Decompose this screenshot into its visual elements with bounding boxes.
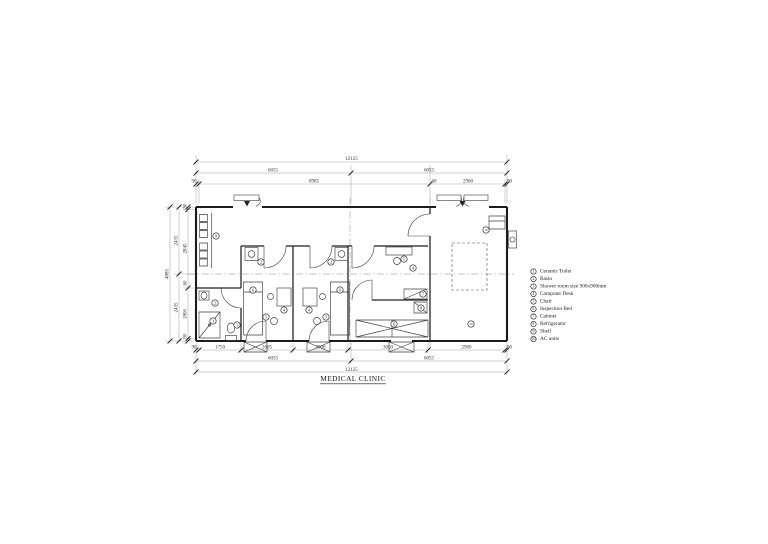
svg-text:2: 2 (533, 277, 535, 281)
svg-text:3: 3 (212, 319, 214, 324)
svg-text:6: 6 (393, 322, 395, 327)
svg-text:10: 10 (469, 322, 473, 326)
drawing-sheet: 12125 6055 6055 90 8985 60 2900 90 90 17… (0, 0, 768, 544)
dimension-text-left: 4885 2435 2435 90 2845 60 1800 90 (165, 203, 188, 339)
svg-text:5: 5 (533, 300, 535, 304)
legend-label: Ceramic Toilet (540, 269, 572, 275)
dim-bot-half-left: 6055 (268, 357, 279, 362)
svg-text:5: 5 (403, 257, 405, 262)
room-c-desk-icon (386, 247, 412, 255)
dim-bot-90-left: 90 (192, 345, 198, 350)
svg-text:5: 5 (325, 315, 327, 320)
room-a-desk-icon (277, 288, 291, 306)
dim-left-90-bottom: 90 (183, 333, 188, 339)
dimension-text-bottom: 90 1750 2605 2000 3050 2900 90 6055 6055… (192, 345, 513, 373)
legend: 1Ceramic Toilet 2Basin 3Shower room size… (531, 269, 607, 343)
entrance-door-curl (256, 198, 260, 207)
dim-top-90-left: 90 (192, 180, 198, 185)
room-a-basin-icon (245, 248, 258, 261)
waiting-area-shelving (200, 213, 212, 268)
legend-item: 8Refrigerator (531, 320, 566, 327)
dim-top-60: 60 (432, 180, 438, 185)
svg-text:10: 10 (484, 228, 488, 232)
label-room-a-chair: 5 (263, 314, 269, 320)
label-ac-top: 10 (483, 227, 489, 233)
svg-text:2: 2 (214, 301, 216, 306)
dim-left-2845: 2845 (183, 243, 188, 254)
label-room-b-basin: 2 (328, 259, 334, 265)
double-door-leaf-left (437, 195, 461, 201)
svg-text:6: 6 (339, 288, 341, 293)
svg-text:8: 8 (533, 322, 535, 326)
svg-text:6: 6 (252, 288, 254, 293)
dim-left-2435-top: 2435 (174, 235, 179, 246)
room-b-basin-icon (335, 248, 348, 261)
floor-plan-svg: 12125 6055 6055 90 8985 60 2900 90 90 17… (0, 0, 768, 544)
ac-condenser-fan-icon (510, 237, 515, 242)
svg-text:1: 1 (533, 270, 535, 274)
dim-left-2435-bottom: 2435 (174, 302, 179, 313)
svg-text:6: 6 (533, 307, 535, 311)
label-room-a-basin: 2 (258, 259, 264, 265)
dim-top-total: 12125 (345, 157, 358, 162)
legend-label: Cabinet (540, 314, 557, 320)
label-shelf: 9 (213, 233, 219, 239)
label-room-b-chair: 5 (323, 314, 329, 320)
dim-top-90-right: 90 (507, 180, 513, 185)
dim-left-90-top: 90 (183, 203, 188, 209)
wc-basin-bowl-icon (201, 292, 207, 299)
shelf-seats (200, 213, 212, 268)
dim-bot-90-right: 90 (507, 345, 513, 350)
dim-bot-total: 12125 (345, 368, 358, 373)
label-room-b-desk: 4 (306, 307, 312, 313)
wc-basin-icon (199, 291, 209, 300)
label-room-a-desk: 4 (281, 307, 287, 313)
toilet-room-fixtures (199, 291, 237, 341)
room-b-patient-chair-icon (314, 318, 321, 325)
legend-label: Shower room size 900x900mm (540, 284, 607, 290)
double-door-leaf-right (464, 195, 488, 201)
svg-text:9: 9 (533, 330, 535, 334)
svg-text:2: 2 (330, 260, 332, 265)
reserved-area-dashed-rect (452, 243, 487, 290)
dim-bot-half-right: 6055 (424, 357, 435, 362)
legend-item: 10AC units (531, 336, 559, 342)
label-room-a-bed: 6 (250, 287, 256, 293)
legend-item: 5Chair (531, 299, 552, 305)
label-room-c-desk: 4 (410, 265, 416, 271)
label-ac-bottom: 10 (468, 321, 474, 327)
legend-label: Shelf (540, 328, 551, 335)
label-ward-bed: 6 (391, 321, 397, 327)
label-wc-shower: 3 (210, 318, 216, 324)
svg-text:4: 4 (533, 292, 535, 296)
legend-item: 1Ceramic Toilet (531, 269, 572, 275)
label-wc-basin: 2 (212, 300, 218, 306)
svg-text:2: 2 (260, 260, 262, 265)
legend-label: Basin (540, 276, 552, 282)
door-swing-arcs (221, 214, 430, 341)
dimension-ticks (168, 160, 510, 375)
step-middle (307, 342, 330, 352)
room-c-chair-icon (394, 258, 401, 265)
svg-text:8: 8 (420, 306, 422, 311)
shower-icon (199, 312, 220, 338)
ac-indoor-unit-icon (489, 216, 505, 229)
svg-text:9: 9 (215, 234, 217, 239)
entrance-door-single (234, 195, 260, 207)
label-cabinet: 7 (420, 291, 426, 297)
entrance-door-double (437, 195, 488, 207)
legend-item: 9Shelf (531, 328, 552, 335)
room-a-basin-bowl-icon (248, 251, 255, 258)
dim-top-2900: 2900 (463, 180, 474, 185)
dimension-text-top: 12125 6055 6055 90 8985 60 2900 90 (192, 157, 513, 184)
label-wc-toilet: 1 (234, 322, 240, 328)
svg-text:3: 3 (533, 285, 535, 289)
doors (221, 195, 488, 352)
dim-top-8985: 8985 (309, 180, 320, 185)
entrance-door-leaf (234, 195, 259, 201)
dim-top-half-right: 6055 (424, 168, 435, 173)
legend-label: Computer Desk (540, 291, 574, 297)
dim-bot-1750: 1750 (215, 345, 226, 350)
legend-label: Chair (540, 299, 552, 305)
legend-item: 2Basin (531, 276, 553, 282)
entrance-arrow-icon (244, 201, 250, 207)
svg-text:5: 5 (265, 315, 267, 320)
dim-left-60: 60 (183, 280, 188, 286)
room-b-desk-icon (303, 288, 317, 306)
label-room-c-chair: 5 (401, 256, 407, 262)
toilet-tank-icon (226, 336, 237, 341)
dim-bot-2900: 2900 (462, 345, 473, 350)
label-refrigerator: 8 (418, 305, 424, 311)
legend-item: 6Inspection Bed (531, 306, 572, 312)
dim-bot-3050: 3050 (383, 345, 394, 350)
svg-text:1: 1 (236, 323, 238, 328)
page-title: MEDICAL CLINIC (320, 374, 385, 383)
dim-top-half-left: 6055 (268, 168, 279, 173)
legend-label: AC units (540, 336, 559, 342)
legend-item: 7Cabinet (531, 314, 557, 320)
label-room-b-bed: 6 (337, 287, 343, 293)
dim-left-1800: 1800 (183, 309, 188, 320)
legend-item: 4Computer Desk (531, 291, 574, 297)
legend-label: Refrigerator (540, 320, 566, 327)
room-b-desk-chair-icon (320, 294, 326, 300)
dim-left-total: 4885 (165, 269, 170, 280)
room-a-patient-chair-icon (271, 318, 278, 325)
room-b-basin-bowl-icon (338, 251, 345, 258)
room-a-desk-chair-icon (268, 294, 274, 300)
svg-text:7: 7 (533, 315, 535, 319)
legend-label: Inspection Bed (540, 306, 572, 312)
legend-item: 3Shower room size 900x900mm (531, 284, 607, 290)
drawing-title: MEDICAL CLINIC (320, 374, 386, 384)
svg-text:10: 10 (532, 337, 536, 341)
svg-text:7: 7 (422, 292, 424, 297)
